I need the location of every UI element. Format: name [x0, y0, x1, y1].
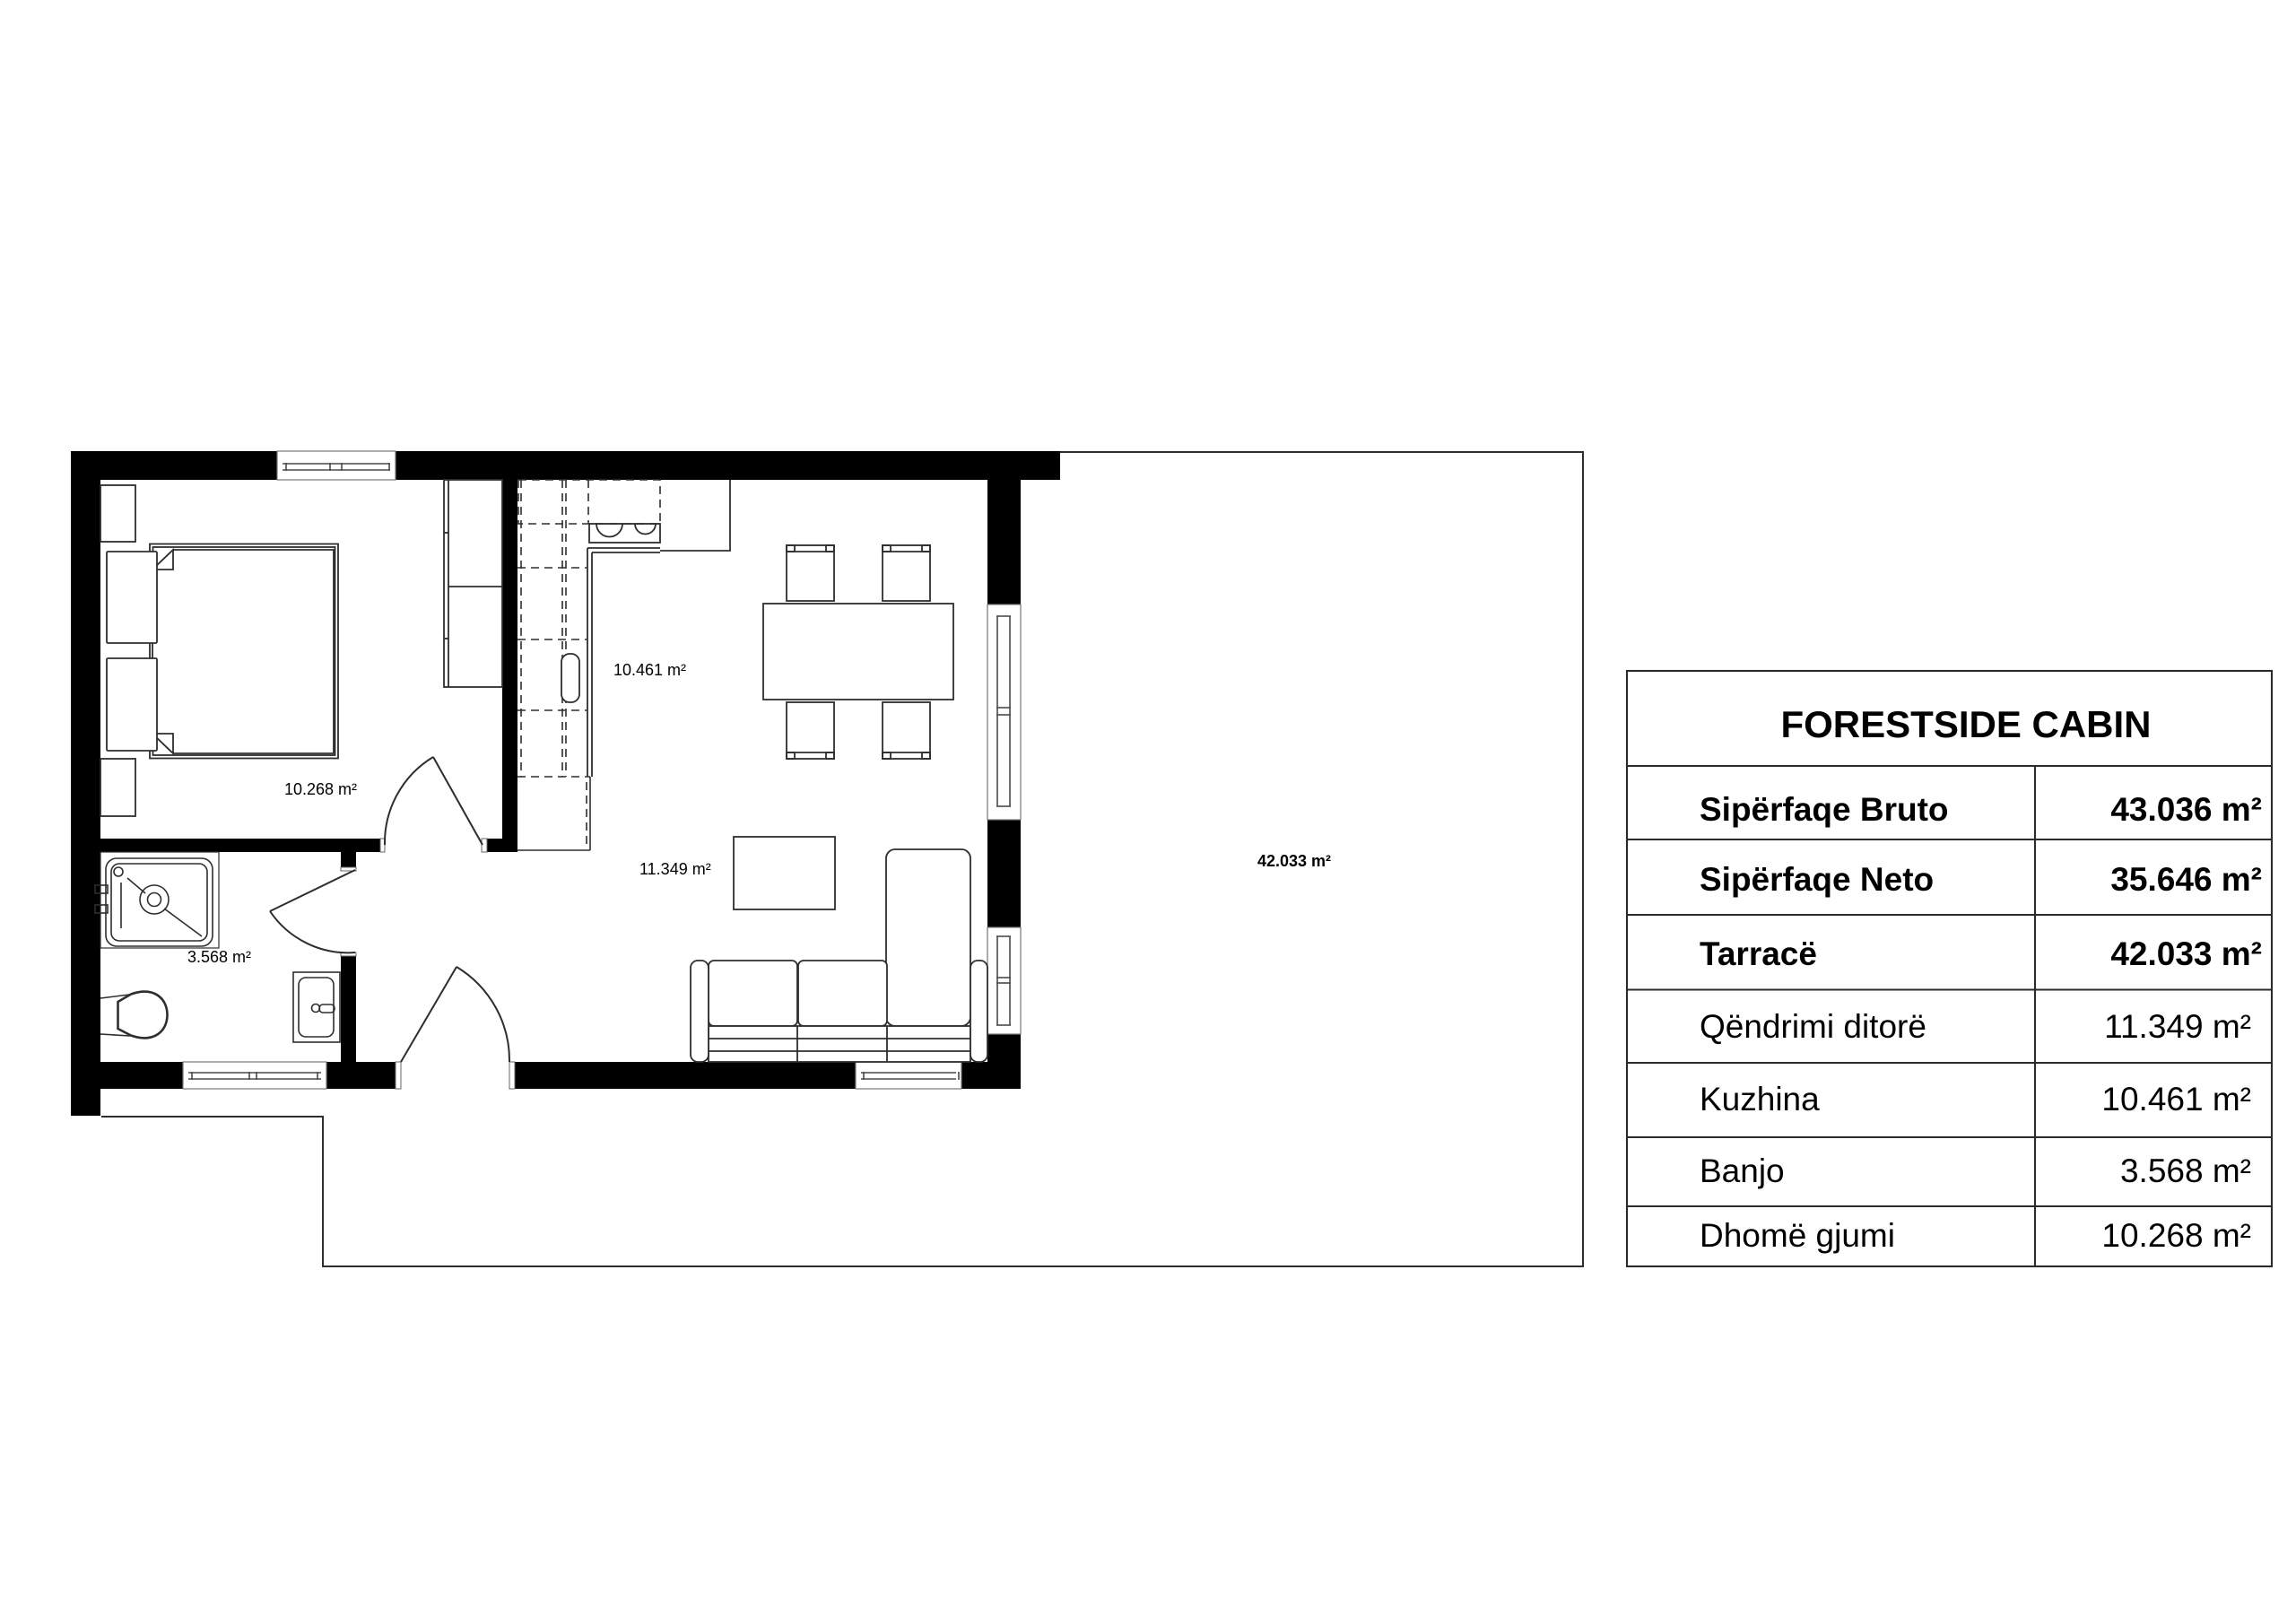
- svg-text:42.033 m²: 42.033 m²: [2110, 935, 2262, 972]
- svg-text:35.646 m²: 35.646 m²: [2110, 861, 2262, 898]
- svg-text:43.036 m²: 43.036 m²: [2110, 791, 2262, 828]
- svg-text:10.268 m²: 10.268 m²: [284, 780, 357, 798]
- svg-text:3.568 m²: 3.568 m²: [187, 948, 251, 966]
- svg-text:3.568 m²: 3.568 m²: [2120, 1152, 2251, 1189]
- svg-text:Tarracë: Tarracë: [1700, 935, 1817, 972]
- svg-text:Banjo: Banjo: [1700, 1152, 1785, 1189]
- svg-text:Kuzhina: Kuzhina: [1700, 1081, 1820, 1118]
- svg-text:10.461 m²: 10.461 m²: [2101, 1081, 2251, 1118]
- svg-text:FORESTSIDE CABIN: FORESTSIDE CABIN: [1780, 703, 2151, 745]
- svg-text:42.033 m²: 42.033 m²: [1257, 852, 1331, 870]
- svg-text:10.268 m²: 10.268 m²: [2101, 1217, 2251, 1254]
- svg-text:10.461 m²: 10.461 m²: [613, 661, 686, 679]
- svg-text:11.349 m²: 11.349 m²: [639, 860, 711, 878]
- svg-text:11.349 m²: 11.349 m²: [2104, 1008, 2251, 1045]
- svg-text:Dhomë gjumi: Dhomë gjumi: [1700, 1217, 1895, 1254]
- svg-text:Qëndrimi ditorë: Qëndrimi ditorë: [1700, 1008, 1926, 1045]
- svg-text:Sipërfaqe Neto: Sipërfaqe Neto: [1700, 861, 1934, 898]
- svg-text:Sipërfaqe Bruto: Sipërfaqe Bruto: [1700, 791, 1949, 828]
